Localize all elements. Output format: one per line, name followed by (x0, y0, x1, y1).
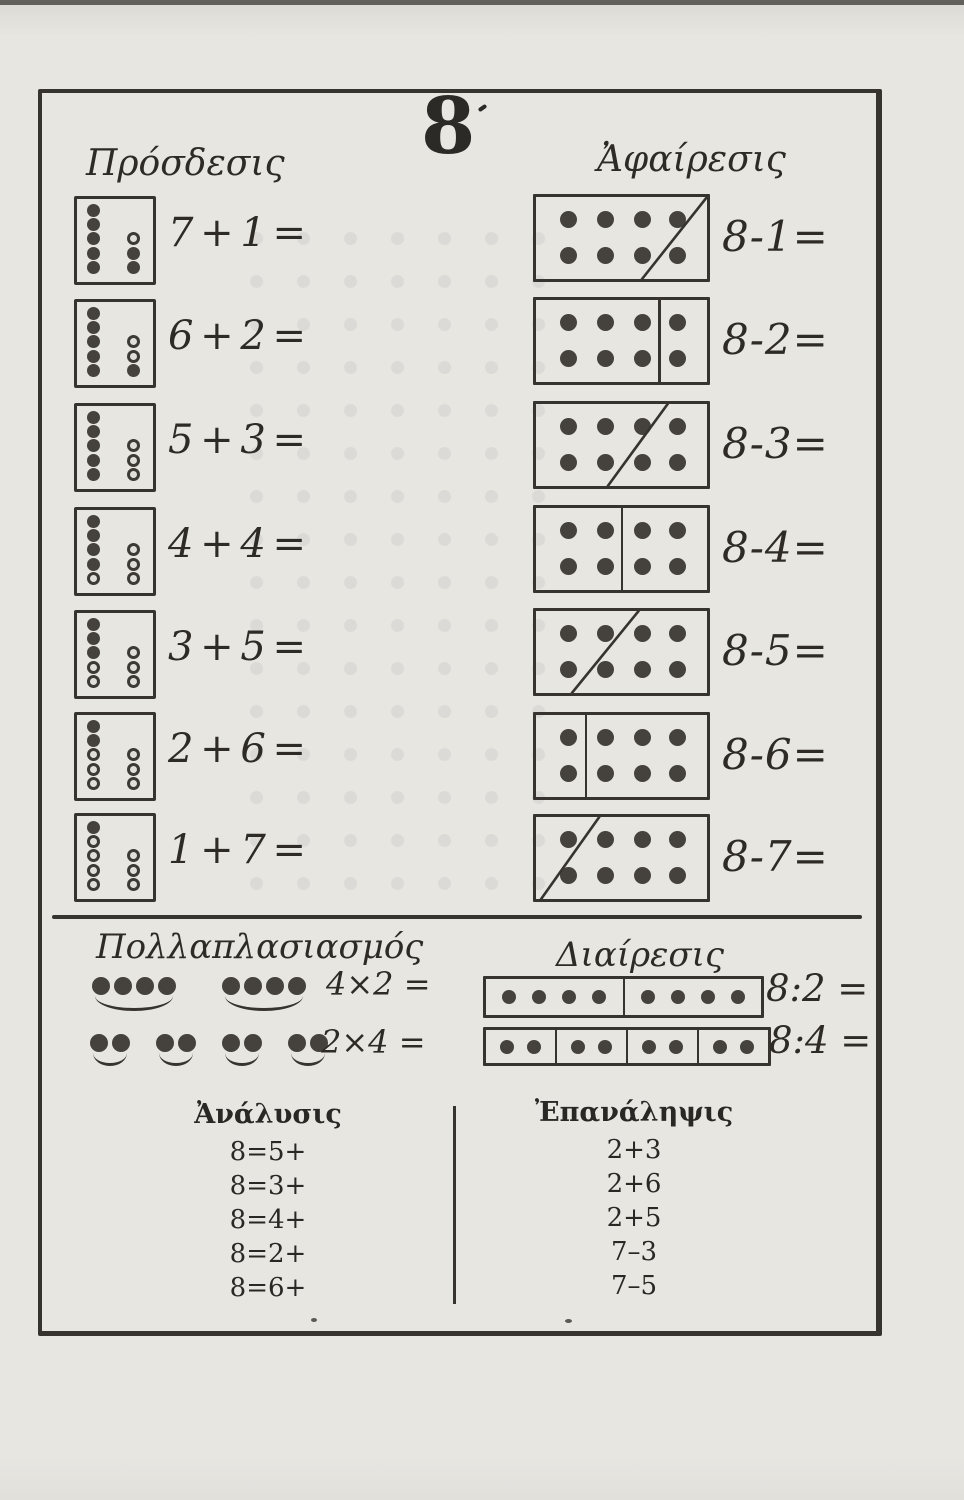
filled-dot (87, 439, 100, 452)
filled-dot (597, 765, 614, 782)
subtraction-domino (533, 194, 710, 282)
filled-dot (560, 350, 577, 367)
repetition-block: Ἐπανάληψις 2+32+62+57–37–5 (524, 1098, 744, 1303)
analysis-item: 8=4+ (148, 1203, 388, 1237)
open-dot (127, 350, 140, 363)
open-dot (127, 232, 140, 245)
subtraction-equation-label: 8-4= (722, 527, 829, 569)
domino-divider-line (658, 300, 661, 382)
group-underline-arc (159, 1053, 193, 1066)
open-dot (127, 646, 140, 659)
subtraction-equation-label: 8-1= (722, 216, 829, 258)
filled-dot (114, 977, 132, 995)
multiplication-section-title: Πολλαπλασιασμός (96, 930, 423, 964)
domino-divider-line (585, 715, 588, 797)
filled-dot (713, 1040, 727, 1054)
group-underline-arc (225, 996, 303, 1011)
filled-dot (527, 1040, 541, 1054)
domino-diagonal-line (536, 611, 707, 693)
division-equation-label: 8:2 = (766, 970, 868, 1007)
domino-diagonal-line (536, 817, 707, 899)
filled-dot (87, 618, 100, 631)
addition-equation-label: 3 + 5 = (168, 627, 306, 667)
filled-dot (597, 522, 614, 539)
group-underline-arc (225, 1053, 259, 1066)
addition-equation-label: 2 + 6 = (168, 729, 306, 769)
subtraction-domino (533, 608, 710, 696)
page-number-heading: 8 (421, 88, 475, 166)
filled-dot (87, 335, 100, 348)
open-dot (127, 543, 140, 556)
filled-dot (642, 1040, 656, 1054)
open-dot (127, 572, 140, 585)
open-dot (127, 748, 140, 761)
dot-group-dots (92, 977, 176, 995)
filled-dot (701, 990, 715, 1004)
filled-dot (127, 261, 140, 274)
worksheet-page: 8 Πρόσδεσις Ἀφαίρεσις 7 + 1 =6 + 2 =5 + … (0, 0, 964, 1500)
filled-dot (669, 314, 686, 331)
filled-dot (592, 990, 606, 1004)
subtraction-domino (533, 814, 710, 902)
filled-dot (87, 350, 100, 363)
filled-dot (112, 1034, 130, 1052)
open-dot (127, 439, 140, 452)
subtraction-equation-label: 8-5= (722, 630, 829, 672)
filled-dot (634, 558, 651, 575)
filled-dot (87, 218, 100, 231)
filled-dot (634, 522, 651, 539)
filled-dot (634, 729, 651, 746)
filled-dot (669, 350, 686, 367)
filled-dot (597, 350, 614, 367)
addition-domino (74, 610, 156, 699)
group-underline-arc (93, 1053, 127, 1066)
open-dot (127, 454, 140, 467)
open-dot (87, 878, 100, 891)
filled-dot (87, 321, 100, 334)
division-strip (483, 976, 764, 1018)
open-dot (87, 748, 100, 761)
division-cell (623, 979, 762, 1015)
open-dot (127, 661, 140, 674)
ink-speck (311, 1318, 317, 1322)
subtraction-section-title: Ἀφαίρεσις (597, 142, 786, 178)
open-dot (127, 675, 140, 688)
filled-dot (500, 1040, 514, 1054)
subtraction-equation-label: 8-2= (722, 319, 829, 361)
filled-dot (560, 314, 577, 331)
filled-dot (740, 1040, 754, 1054)
addition-equation-label: 4 + 4 = (168, 524, 306, 564)
open-dot (127, 777, 140, 790)
addition-domino (74, 403, 156, 492)
addition-domino (74, 299, 156, 388)
filled-dot (87, 468, 100, 481)
filled-dot (92, 977, 110, 995)
filled-dot (634, 765, 651, 782)
subtraction-equation-label: 8-7= (722, 836, 829, 878)
dot-group (90, 1034, 130, 1066)
filled-dot (560, 522, 577, 539)
filled-dot (244, 977, 262, 995)
multiplication-equation-label: 4×2 = (326, 968, 431, 1000)
filled-dot (560, 558, 577, 575)
open-dot (127, 468, 140, 481)
division-cell (697, 1030, 768, 1063)
filled-dot (87, 364, 100, 377)
analysis-item: 8=6+ (148, 1271, 388, 1305)
open-dot (87, 835, 100, 848)
filled-dot (87, 204, 100, 217)
open-dot (87, 777, 100, 790)
subtraction-domino (533, 505, 710, 593)
dot-group (222, 977, 306, 1011)
filled-dot (671, 990, 685, 1004)
filled-dot (266, 977, 284, 995)
analysis-items: 8=5+8=3+8=4+8=2+8=6+ (148, 1135, 388, 1305)
horizontal-section-rule (52, 915, 862, 919)
filled-dot (597, 729, 614, 746)
open-dot (87, 675, 100, 688)
bottom-column-divider (453, 1106, 456, 1304)
open-dot (127, 878, 140, 891)
filled-dot (288, 977, 306, 995)
addition-section-title: Πρόσδεσις (86, 146, 285, 182)
dot-group-dots (90, 1034, 130, 1052)
multiplication-row (90, 1034, 328, 1066)
filled-dot (560, 729, 577, 746)
open-dot (87, 763, 100, 776)
addition-domino (74, 507, 156, 596)
filled-dot (598, 1040, 612, 1054)
filled-dot (87, 307, 100, 320)
addition-domino (74, 813, 156, 902)
filled-dot (87, 646, 100, 659)
filled-dot (571, 1040, 585, 1054)
open-dot (127, 335, 140, 348)
filled-dot (669, 522, 686, 539)
analysis-item: 8=5+ (148, 1135, 388, 1169)
dot-group-dots (222, 977, 306, 995)
filled-dot (222, 1034, 240, 1052)
filled-dot (669, 1040, 683, 1054)
filled-dot (669, 558, 686, 575)
dot-group-dots (222, 1034, 262, 1052)
multiplication-row (92, 977, 306, 1011)
division-cell (486, 979, 623, 1015)
addition-equation-label: 7 + 1 = (168, 213, 306, 253)
addition-equation-label: 5 + 3 = (168, 420, 306, 460)
filled-dot (87, 261, 100, 274)
filled-dot (669, 765, 686, 782)
addition-equation-label: 1 + 7 = (168, 830, 306, 870)
dot-group (222, 1034, 262, 1066)
ink-speck (565, 1319, 572, 1323)
open-dot (87, 572, 100, 585)
open-dot (87, 849, 100, 862)
subtraction-equation-label: 8-3= (722, 423, 829, 465)
group-underline-arc (95, 996, 173, 1011)
analysis-block: Ἀνάλυσις 8=5+8=3+8=4+8=2+8=6+ (148, 1100, 388, 1305)
division-strip (483, 1027, 771, 1066)
filled-dot (597, 558, 614, 575)
filled-dot (669, 729, 686, 746)
filled-dot (158, 977, 176, 995)
filled-dot (731, 990, 745, 1004)
filled-dot (87, 454, 100, 467)
repetition-title: Ἐπανάληψις (524, 1098, 744, 1128)
filled-dot (87, 232, 100, 245)
filled-dot (87, 425, 100, 438)
filled-dot (87, 821, 100, 834)
repetition-item: 2+6 (524, 1167, 744, 1201)
scan-top-edge (0, 0, 964, 5)
filled-dot (597, 314, 614, 331)
filled-dot (532, 990, 546, 1004)
filled-dot (136, 977, 154, 995)
filled-dot (87, 247, 100, 260)
division-cell (555, 1030, 626, 1063)
division-section-title: Διαίρεσις (556, 938, 724, 972)
filled-dot (87, 632, 100, 645)
domino-divider-line (621, 508, 624, 590)
multiplication-equation-label: 2×4 = (321, 1026, 426, 1058)
domino-diagonal-line (536, 404, 707, 486)
subtraction-equation-label: 8-6= (722, 734, 829, 776)
analysis-title: Ἀνάλυσις (148, 1100, 388, 1130)
open-dot (127, 763, 140, 776)
division-cell (626, 1030, 697, 1063)
addition-domino (74, 196, 156, 285)
filled-dot (87, 543, 100, 556)
open-dot (87, 864, 100, 877)
filled-dot (87, 558, 100, 571)
subtraction-domino (533, 401, 710, 489)
subtraction-domino (533, 297, 710, 385)
analysis-item: 8=2+ (148, 1237, 388, 1271)
division-cell (486, 1030, 555, 1063)
filled-dot (87, 411, 100, 424)
dot-group (92, 977, 176, 1011)
group-underline-arc (291, 1053, 325, 1066)
filled-dot (127, 364, 140, 377)
filled-dot (87, 515, 100, 528)
subtraction-domino (533, 712, 710, 800)
filled-dot (562, 990, 576, 1004)
dot-group (156, 1034, 196, 1066)
filled-dot (90, 1034, 108, 1052)
addition-domino (74, 712, 156, 801)
repetition-item: 7–3 (524, 1235, 744, 1269)
repetition-item: 2+5 (524, 1201, 744, 1235)
filled-dot (87, 720, 100, 733)
filled-dot (244, 1034, 262, 1052)
domino-diagonal-line (536, 197, 707, 279)
filled-dot (288, 1034, 306, 1052)
addition-equation-label: 6 + 2 = (168, 316, 306, 356)
open-dot (127, 558, 140, 571)
filled-dot (634, 350, 651, 367)
repetition-items: 2+32+62+57–37–5 (524, 1133, 744, 1303)
open-dot (127, 864, 140, 877)
filled-dot (641, 990, 655, 1004)
filled-dot (560, 765, 577, 782)
dot-group-dots (156, 1034, 196, 1052)
analysis-item: 8=3+ (148, 1169, 388, 1203)
filled-dot (87, 734, 100, 747)
filled-dot (634, 314, 651, 331)
repetition-item: 2+3 (524, 1133, 744, 1167)
open-dot (127, 849, 140, 862)
filled-dot (127, 247, 140, 260)
filled-dot (178, 1034, 196, 1052)
repetition-item: 7–5 (524, 1269, 744, 1303)
division-equation-label: 8:4 = (769, 1022, 871, 1059)
open-dot (87, 661, 100, 674)
filled-dot (87, 529, 100, 542)
filled-dot (502, 990, 516, 1004)
filled-dot (156, 1034, 174, 1052)
filled-dot (222, 977, 240, 995)
